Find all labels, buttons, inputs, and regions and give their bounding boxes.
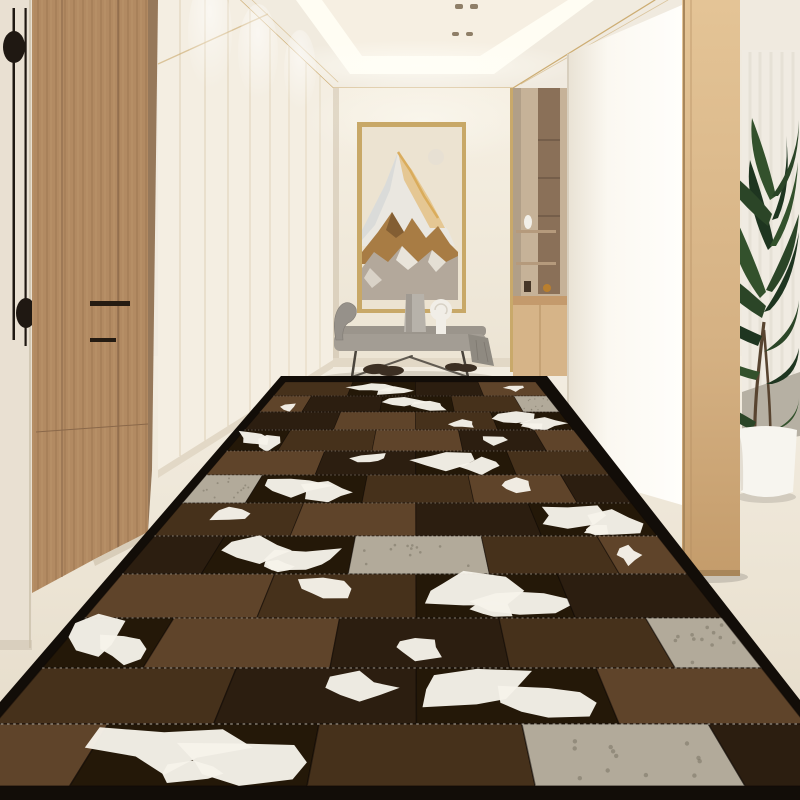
rug-tile — [315, 451, 416, 475]
speckle-dot — [217, 482, 219, 484]
rug-tile — [143, 618, 340, 668]
speckle-dot — [573, 746, 577, 750]
speckle-dot — [606, 768, 610, 772]
speckle-dot — [547, 399, 548, 400]
speckle-dot — [712, 631, 716, 635]
white-planter-pot — [735, 426, 797, 497]
speckle-dot — [419, 551, 422, 554]
dark-jar-icon — [524, 281, 531, 292]
speckle-dot — [233, 497, 235, 499]
niche-gold-trim — [510, 88, 513, 372]
speckle-dot — [240, 489, 242, 491]
speckle-dot — [732, 641, 736, 645]
niche-counter — [513, 296, 568, 305]
rug-tile — [362, 475, 474, 503]
speckle-dot — [467, 564, 470, 567]
speckle-dot — [237, 492, 239, 494]
rug-tile — [522, 724, 745, 786]
rug-tile — [372, 430, 463, 451]
vase-shade — [406, 294, 412, 332]
speckle-dot — [698, 759, 702, 763]
speckle-dot — [410, 547, 413, 550]
rug-tile — [416, 503, 542, 536]
speckle-dot — [611, 749, 615, 753]
rug-tile — [214, 668, 417, 724]
speckle-dot — [692, 773, 696, 777]
speckle-dot — [710, 643, 714, 647]
speckle-dot — [674, 639, 678, 643]
rug-tile — [278, 430, 377, 451]
speckle-dot — [720, 623, 724, 627]
pull-rod-icon — [25, 8, 27, 346]
wood-pillar-panel — [676, 0, 748, 583]
speckle-dot — [203, 490, 205, 492]
rug-tile — [290, 503, 416, 536]
speckle-dot — [206, 489, 208, 491]
speckle-dot — [228, 477, 230, 479]
spotlight-icon — [466, 32, 473, 36]
open-shelf — [516, 230, 556, 233]
speckle-dot — [247, 487, 249, 489]
speckle-dot — [692, 637, 696, 641]
handle-slot-icon — [90, 301, 130, 306]
speckle-dot — [363, 549, 366, 552]
handle-slot-icon — [90, 338, 116, 342]
speckle-dot — [390, 548, 393, 551]
white-vase-icon — [524, 215, 532, 229]
speckle-dot — [531, 409, 532, 410]
speckle-dot — [534, 398, 535, 399]
speckle-dot — [537, 409, 538, 410]
rug-tile — [307, 724, 535, 786]
speckle-dot — [409, 554, 412, 557]
moon-icon — [428, 149, 444, 165]
rug-tile — [245, 412, 341, 430]
rug-tile — [416, 412, 498, 430]
speckle-dot — [227, 481, 229, 483]
rug-tile — [348, 536, 489, 574]
speckle-dot — [524, 408, 525, 409]
hallway-scene — [0, 0, 800, 800]
towel-tail — [436, 314, 446, 334]
speckle-dot — [676, 635, 680, 639]
shoe — [457, 364, 477, 372]
spotlight-icon — [452, 32, 459, 36]
bench-seat — [334, 334, 486, 351]
speckle-dot — [411, 544, 414, 547]
rug-tile — [415, 382, 483, 396]
rug-tile — [206, 451, 325, 475]
speckle-dot — [439, 545, 442, 548]
open-shelf — [516, 262, 556, 265]
speckle-dot — [243, 487, 245, 489]
speckle-dot — [614, 754, 618, 758]
rug-tile — [451, 396, 523, 412]
spotlight-icon — [455, 4, 463, 9]
speckle-dot — [244, 484, 246, 486]
speckle-dot — [690, 633, 694, 637]
wardrobe-wood-doors — [32, 0, 148, 593]
speckle-dot — [573, 739, 577, 743]
speckle-dot — [644, 773, 648, 777]
rug-tile — [273, 382, 352, 396]
speckle-dot — [214, 497, 216, 499]
rug-tile — [302, 396, 383, 412]
rug-tile — [499, 618, 675, 668]
left-stile-baseboard — [0, 640, 32, 650]
speckle-dot — [705, 626, 709, 630]
speckle-dot — [535, 406, 536, 407]
mountain-painting — [357, 122, 466, 313]
scene-svg — [0, 0, 800, 800]
speckle-dot — [691, 661, 695, 665]
shelf-niche — [513, 88, 568, 376]
speckle-dot — [578, 776, 582, 780]
speckle-dot — [416, 546, 419, 549]
rug-tile — [333, 412, 415, 430]
amber-jar-icon — [543, 284, 551, 292]
rug-tile — [0, 668, 236, 724]
speckle-dot — [543, 398, 544, 399]
speckle-dot — [394, 544, 397, 547]
speckle-dot — [609, 745, 613, 749]
speckle-dot — [406, 545, 409, 548]
speckle-dot — [685, 741, 689, 745]
speckle-dot — [528, 400, 529, 401]
speckle-dot — [529, 399, 530, 400]
speckle-dot — [719, 636, 723, 640]
speckle-dot — [541, 406, 542, 407]
pull-mount-icon — [3, 31, 25, 63]
spotlight-icon — [470, 4, 478, 9]
rug-tile — [481, 536, 619, 574]
speckle-dot — [700, 638, 704, 642]
speckle-dot — [365, 563, 368, 566]
end-wall — [303, 75, 543, 385]
